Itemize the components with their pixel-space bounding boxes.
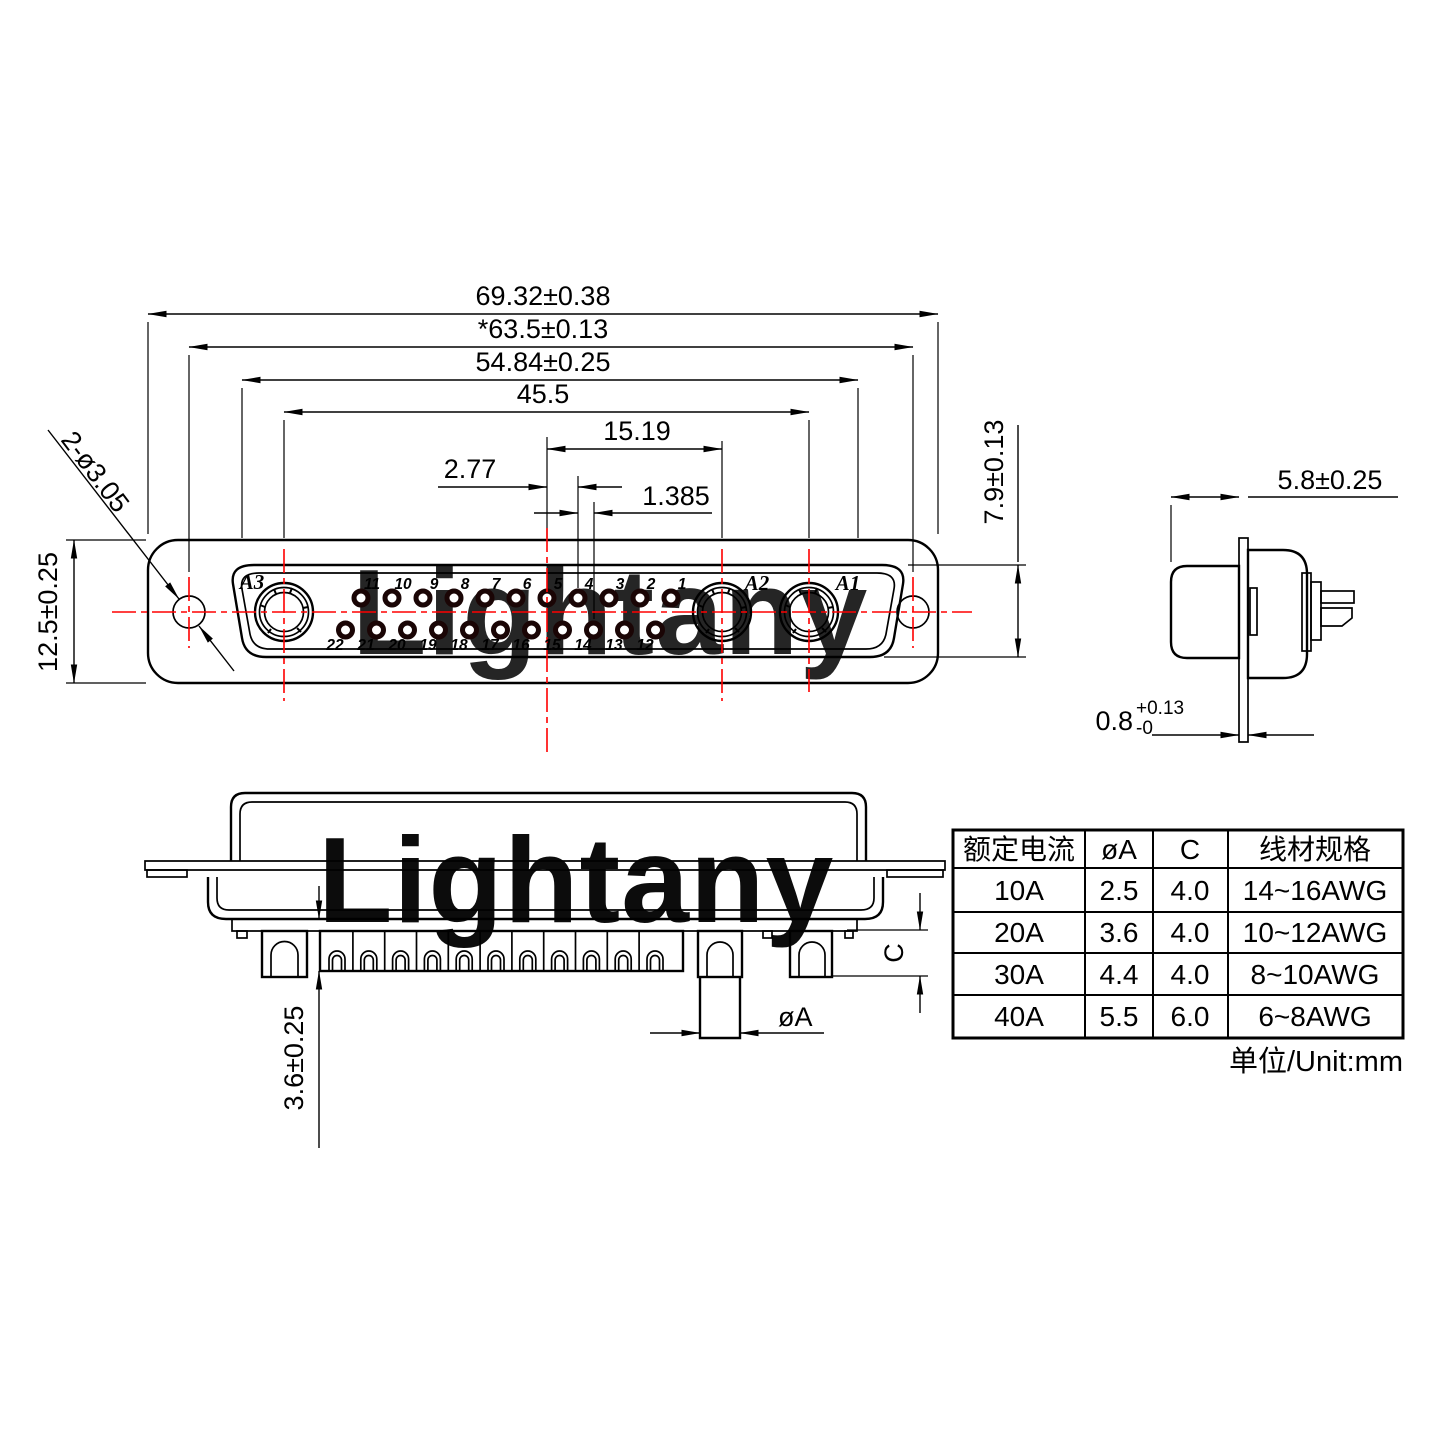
dim-shell-width: 54.84±0.25 xyxy=(476,347,611,377)
header-rated-current: 额定电流 xyxy=(963,834,1075,865)
spec-table-headers: 额定电流 øA C 线材规格 xyxy=(963,834,1371,865)
svg-text:15: 15 xyxy=(543,637,561,654)
header-wire-spec: 线材规格 xyxy=(1259,834,1371,865)
svg-text:8: 8 xyxy=(461,576,470,593)
table-cell: 30A xyxy=(994,959,1044,990)
svg-text:6: 6 xyxy=(523,576,532,593)
svg-text:11: 11 xyxy=(364,576,380,593)
svg-text:14: 14 xyxy=(574,637,592,654)
header-c: C xyxy=(1180,834,1200,865)
dim-flange-tol-plus: +0.13 xyxy=(1136,698,1184,719)
table-cell: 6.0 xyxy=(1171,1001,1210,1032)
svg-text:12: 12 xyxy=(636,637,654,654)
power-pin-tail xyxy=(700,977,740,1038)
svg-text:13: 13 xyxy=(605,637,623,654)
svg-text:17: 17 xyxy=(481,637,500,654)
svg-text:4: 4 xyxy=(584,576,594,593)
dim-flange-height: 12.5±0.25 xyxy=(33,552,63,672)
bottom-view: Lightany xyxy=(145,793,945,1148)
dim-hole-span: *63.5±0.13 xyxy=(478,314,608,344)
dim-mounting-holes: 2-ø3.05 xyxy=(55,426,135,518)
label-a3: A3 xyxy=(238,570,265,594)
watermark-bottom: Lightany xyxy=(318,812,834,948)
table-cell: 10A xyxy=(994,875,1044,906)
dim-pin-diameter: øA xyxy=(778,1002,813,1032)
spec-table: 额定电流 øA C 线材规格 10A 2.5 4.0 14~16AWG 20A … xyxy=(953,830,1403,1078)
svg-text:21: 21 xyxy=(356,637,374,654)
table-cell: 20A xyxy=(994,917,1044,948)
dim-flange-thickness: 0.8 xyxy=(1095,706,1133,736)
table-cell: 3.6 xyxy=(1100,917,1139,948)
svg-text:2: 2 xyxy=(646,576,656,593)
dim-width-outer: 69.32±0.38 xyxy=(476,281,611,311)
table-cell: 4.0 xyxy=(1171,917,1210,948)
dim-pin-pitch: 2.77 xyxy=(444,454,497,484)
svg-text:16: 16 xyxy=(512,637,530,654)
header-pin-dia: øA xyxy=(1101,834,1137,865)
side-outline xyxy=(1171,538,1354,742)
table-cell: 40A xyxy=(994,1001,1044,1032)
label-a1: A1 xyxy=(834,571,861,595)
svg-text:19: 19 xyxy=(419,637,437,654)
table-cell: 4.4 xyxy=(1100,959,1139,990)
svg-text:3: 3 xyxy=(616,576,625,593)
dim-center-to-a2: 15.19 xyxy=(603,416,671,446)
table-cell: 6~8AWG xyxy=(1258,1001,1371,1032)
svg-text:20: 20 xyxy=(387,637,406,654)
svg-text:22: 22 xyxy=(325,637,344,654)
table-cell: 2.5 xyxy=(1100,875,1139,906)
dim-row-offset: 1.385 xyxy=(642,481,710,511)
dim-cup-depth: C xyxy=(879,943,909,963)
table-cell: 4.0 xyxy=(1171,875,1210,906)
side-view: 5.8±0.25 0.8 +0.13 -0 xyxy=(1095,465,1398,742)
unit-note: 单位/Unit:mm xyxy=(1229,1045,1403,1078)
side-dimensions: 5.8±0.25 0.8 +0.13 -0 xyxy=(1095,465,1398,739)
technical-drawing: Lightany xyxy=(0,0,1440,1440)
table-cell: 14~16AWG xyxy=(1243,875,1387,906)
drawing-canvas: Lightany xyxy=(0,0,1440,1440)
dim-contact-span: 45.5 xyxy=(517,379,570,409)
table-cell: 4.0 xyxy=(1171,959,1210,990)
dim-insert-height: 7.9±0.13 xyxy=(979,420,1009,525)
svg-text:7: 7 xyxy=(492,576,502,593)
front-view: Lightany xyxy=(33,281,1026,757)
table-cell: 5.5 xyxy=(1100,1001,1139,1032)
table-cell: 8~10AWG xyxy=(1251,959,1380,990)
dim-tail-length: 3.6±0.25 xyxy=(279,1006,309,1111)
svg-text:5: 5 xyxy=(554,576,563,593)
svg-text:18: 18 xyxy=(450,637,468,654)
svg-text:10: 10 xyxy=(394,576,412,593)
label-a2: A2 xyxy=(743,571,770,595)
svg-text:9: 9 xyxy=(430,576,439,593)
dim-shell-depth: 5.8±0.25 xyxy=(1278,465,1383,495)
table-cell: 10~12AWG xyxy=(1243,917,1387,948)
dim-flange-tol-minus: -0 xyxy=(1136,718,1153,739)
svg-text:1: 1 xyxy=(678,576,687,593)
